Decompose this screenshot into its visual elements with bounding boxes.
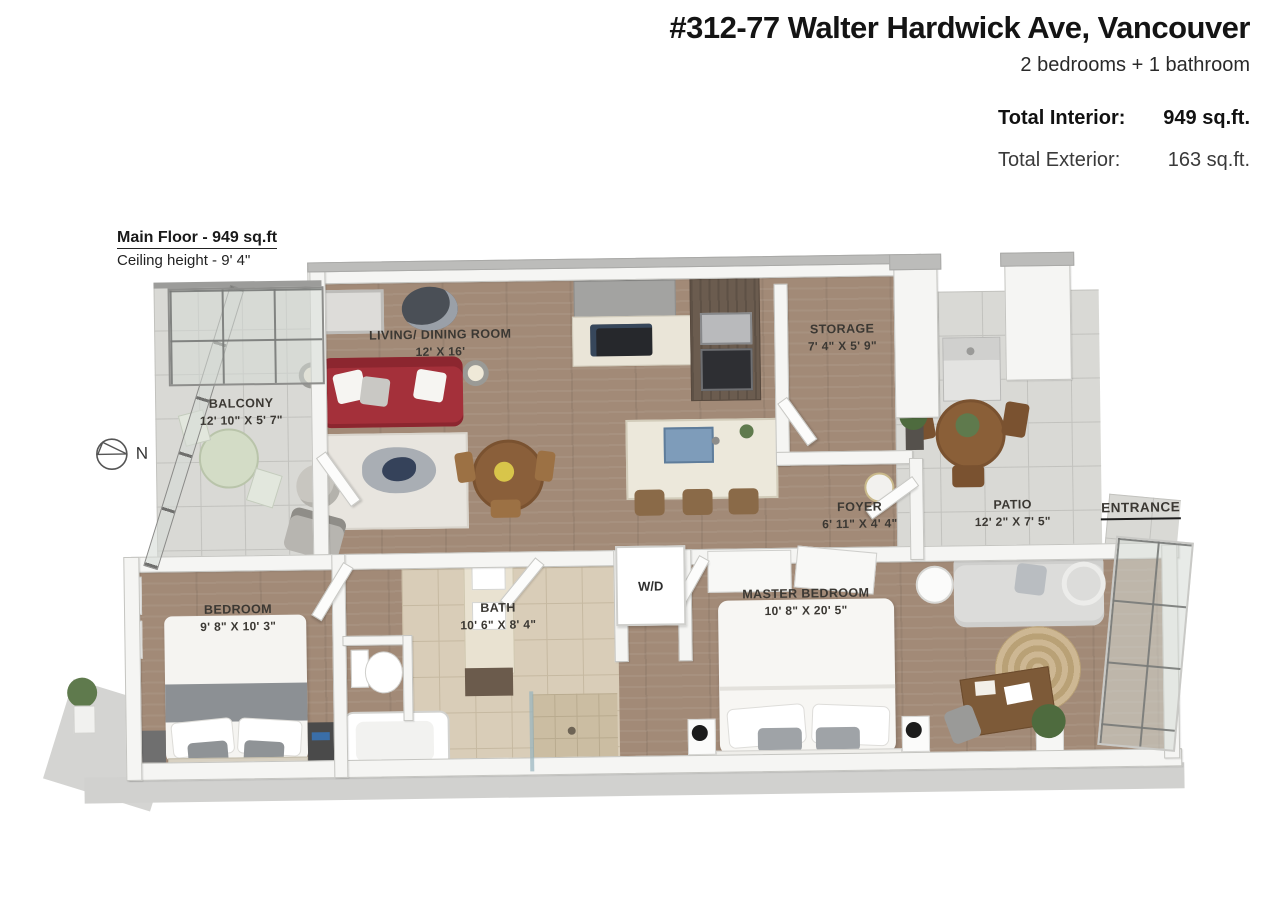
living-label: LIVING/ DINING ROOM 12' X 16' (350, 325, 530, 361)
sofa-pillow-white-2 (413, 369, 447, 403)
balcony-label: BALCONY 12' 10" X 5' 7" (151, 394, 331, 430)
master-pillow-gray-2 (816, 727, 860, 752)
compass-icon (92, 433, 135, 476)
storage-label: STORAGE 7' 4" X 5' 9" (752, 320, 932, 356)
dining-chair-bottom (491, 499, 521, 517)
total-interior-row: Total Interior: 949 sq.ft. (998, 107, 1250, 130)
bar-stool-2 (682, 489, 712, 515)
speaker-right (906, 722, 922, 738)
patio-wall-column-right (1004, 256, 1072, 381)
bbq-lid-handle (966, 347, 974, 355)
floor-plan: N (61, 250, 1194, 818)
entrance-label: ENTRANCE (1071, 496, 1211, 521)
bedroom-desk-laptop (312, 732, 330, 740)
sofa-pillow-gray (359, 376, 390, 407)
washer-dryer-label: W/D (638, 578, 663, 593)
bedroom-nightstand (142, 730, 166, 762)
desk-book (975, 680, 996, 696)
total-exterior-label: Total Exterior: (998, 149, 1120, 172)
dining-chair-right (534, 450, 556, 482)
lounge-sofa-pillow (1014, 563, 1048, 597)
patio-column-left-cap (889, 254, 941, 271)
vanity-cabinet (465, 668, 513, 697)
microwave (700, 312, 752, 345)
shower-drain (568, 727, 576, 735)
bar-stool-1 (634, 489, 664, 515)
bath-label: BATH 10' 6" X 8' 4" (408, 599, 588, 635)
island-plant (739, 424, 753, 438)
total-exterior-row: Total Exterior: 163 sq.ft. (998, 149, 1250, 172)
corner-planter (73, 705, 95, 733)
header: #312-77 Walter Hardwick Ave, Vancouver 2… (669, 10, 1250, 172)
island-sink (664, 427, 714, 464)
bar-stool-3 (728, 488, 758, 514)
bed-bath-summary: 2 bedrooms + 1 bathroom (669, 54, 1250, 77)
bedroom-outer-wall (123, 557, 142, 781)
compass-north-label: N (136, 444, 149, 464)
floor-title: Main Floor - 949 sq.ft (117, 229, 277, 249)
balcony-window-grid (168, 286, 325, 386)
bedroom-blanket (165, 682, 308, 722)
master-label: MASTER BEDROOM 10' 8" X 20' 5" (716, 584, 896, 620)
total-interior-value: 949 sq.ft. (1163, 107, 1250, 130)
gas-cooktop (590, 324, 652, 357)
storage-bottom-wall (776, 450, 913, 466)
bedroom-label: BEDROOM 9' 8" X 10' 3" (148, 600, 328, 636)
sink-faucet (712, 437, 720, 445)
washer-dryer: W/D (615, 545, 686, 626)
storage-left-wall (774, 284, 791, 466)
bathtub-basin (356, 721, 435, 762)
master-pillow-gray-1 (758, 728, 802, 753)
kitchen-upper-cabinets (573, 279, 676, 318)
total-interior-label: Total Interior: (998, 107, 1125, 130)
compass: N (92, 433, 149, 476)
lamp-right (468, 365, 484, 381)
patio-chair-bottom (952, 465, 984, 487)
toilet-nook-wall-side (402, 635, 413, 721)
total-exterior-value: 163 sq.ft. (1168, 149, 1250, 172)
toilet-nook-wall-top (342, 635, 408, 646)
page-title: #312-77 Walter Hardwick Ave, Vancouver (669, 10, 1250, 46)
patio-column-right-cap (1000, 252, 1074, 267)
wall-oven (700, 348, 753, 391)
